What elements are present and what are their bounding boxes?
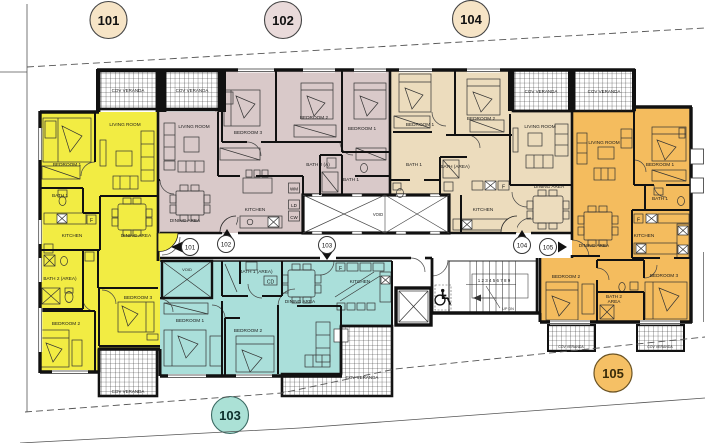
svg-text:BEDROOM 3: BEDROOM 3: [234, 130, 263, 135]
svg-text:COV VERANDA: COV VERANDA: [176, 88, 209, 93]
svg-text:LIVING ROOM: LIVING ROOM: [588, 140, 619, 145]
svg-text:AREA: AREA: [608, 299, 622, 304]
svg-text:WM: WM: [290, 187, 298, 192]
svg-text:BEDROOM 1: BEDROOM 1: [406, 122, 435, 127]
svg-text:F: F: [339, 266, 342, 272]
svg-text:CW: CW: [290, 215, 298, 220]
svg-text:LIVING ROOM: LIVING ROOM: [109, 122, 140, 127]
svg-text:102: 102: [272, 13, 294, 28]
svg-text:BEDROOM 1: BEDROOM 1: [176, 318, 205, 323]
svg-text:DINING AREA: DINING AREA: [121, 233, 152, 238]
svg-text:104: 104: [460, 12, 482, 27]
svg-text:KITCHEN: KITCHEN: [634, 233, 655, 238]
svg-text:DINING AREA: DINING AREA: [285, 299, 316, 304]
svg-text:BEDROOM 2: BEDROOM 2: [300, 115, 329, 120]
svg-text:102: 102: [221, 241, 232, 248]
svg-text:BEDROOM 2: BEDROOM 2: [552, 274, 581, 279]
svg-text:UP DN: UP DN: [502, 307, 514, 311]
svg-text:BATH 2 (A): BATH 2 (A): [306, 162, 330, 167]
svg-text:COV VERANDA: COV VERANDA: [112, 389, 145, 394]
svg-text:BATH 1 (AREA): BATH 1 (AREA): [239, 269, 273, 274]
svg-text:LD: LD: [291, 203, 298, 208]
svg-text:KITCHEN: KITCHEN: [245, 207, 266, 212]
svg-text:VOID: VOID: [182, 267, 192, 272]
svg-text:BEDROOM 1: BEDROOM 1: [348, 126, 377, 131]
svg-text:COV VERANDA: COV VERANDA: [647, 345, 673, 349]
svg-text:DINING AREA: DINING AREA: [534, 184, 565, 189]
svg-text:CD: CD: [267, 280, 275, 286]
svg-text:BATH 1: BATH 1: [343, 177, 359, 182]
svg-text:101: 101: [98, 13, 120, 28]
svg-text:KITCHEN: KITCHEN: [62, 233, 83, 238]
svg-text:COV VERANDA: COV VERANDA: [112, 88, 145, 93]
svg-text:LIVING ROOM: LIVING ROOM: [178, 124, 209, 129]
svg-text:BATH 1: BATH 1: [52, 193, 68, 198]
svg-text:F: F: [90, 218, 93, 224]
svg-text:COV VERANDA: COV VERANDA: [525, 89, 558, 94]
svg-text:BEDROOM 2: BEDROOM 2: [52, 321, 81, 326]
svg-text:103: 103: [219, 408, 241, 423]
svg-text:F: F: [502, 185, 505, 191]
svg-text:101: 101: [185, 244, 196, 251]
svg-text:DINING AREA: DINING AREA: [579, 243, 610, 248]
svg-text:BATH 1: BATH 1: [652, 196, 668, 201]
svg-text:104: 104: [517, 242, 528, 249]
svg-text:BEDROOM 2: BEDROOM 2: [234, 328, 263, 333]
svg-text:BEDROOM 1: BEDROOM 1: [53, 162, 82, 167]
svg-text:LIVING ROOM: LIVING ROOM: [524, 124, 555, 129]
svg-text:COV VERANDA: COV VERANDA: [346, 375, 379, 380]
svg-text:BEDROOM 2: BEDROOM 2: [467, 116, 496, 121]
svg-text:105: 105: [543, 244, 554, 251]
svg-text:COV VERANDA: COV VERANDA: [558, 345, 584, 349]
svg-text:VOID: VOID: [373, 212, 383, 217]
svg-text:BEDROOM 3: BEDROOM 3: [650, 273, 679, 278]
svg-text:BATH 1: BATH 1: [406, 162, 422, 167]
svg-text:KITCHEN: KITCHEN: [350, 279, 371, 284]
svg-text:BATH 2 (AREA): BATH 2 (AREA): [43, 276, 77, 281]
svg-text:F: F: [637, 218, 640, 224]
svg-text:1 2 3 4 5 6 7 8 9: 1 2 3 4 5 6 7 8 9: [478, 278, 511, 283]
svg-text:BATH (AREA): BATH (AREA): [440, 164, 470, 169]
svg-text:KITCHEN: KITCHEN: [473, 207, 494, 212]
svg-text:DINING AREA: DINING AREA: [170, 218, 201, 223]
svg-text:105: 105: [602, 366, 624, 381]
svg-text:BEDROOM 3: BEDROOM 3: [124, 295, 153, 300]
svg-text:103: 103: [322, 242, 333, 249]
svg-text:BEDROOM 1: BEDROOM 1: [646, 162, 675, 167]
svg-text:COV VERANDA: COV VERANDA: [588, 89, 621, 94]
